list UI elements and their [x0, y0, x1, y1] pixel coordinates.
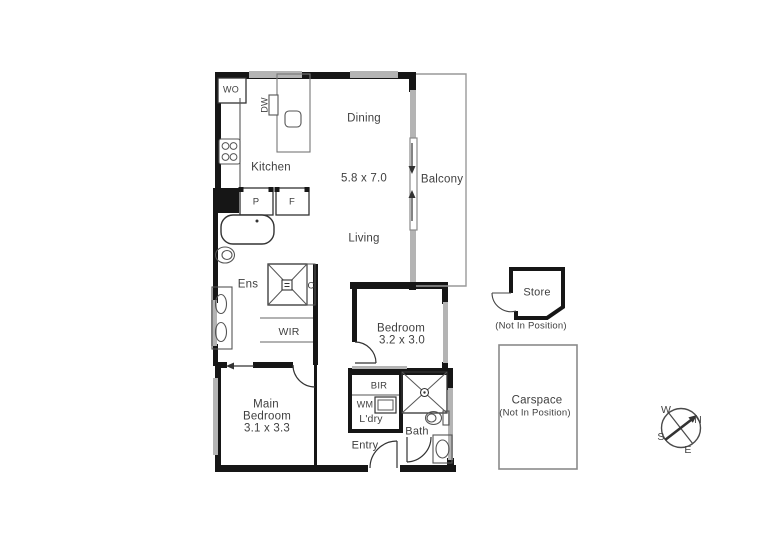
carspace-label: Carspace — [512, 395, 563, 407]
wir-label: WIR — [278, 327, 299, 338]
ensuite-label: Ens — [238, 279, 258, 291]
wall-kitchen-block — [213, 188, 239, 213]
window-balcony-lower — [410, 230, 416, 282]
compass-east-label: E — [684, 445, 691, 456]
windows — [211, 71, 453, 460]
dishwasher — [269, 95, 278, 115]
wm-label: WM — [357, 401, 373, 410]
island-bench — [277, 74, 310, 152]
compass-south-label: S — [657, 432, 664, 443]
window-balcony-upper — [410, 90, 416, 138]
window-mainbed — [213, 378, 218, 455]
basin-bath-bowl — [436, 440, 449, 458]
floor-plan-canvas: WO DW Kitchen Dining 5.8 x 7.0 Living Ba… — [0, 0, 778, 550]
wall-bath-right-top — [447, 368, 453, 390]
bathtub-spout — [256, 220, 259, 223]
vanity-basin — [216, 295, 227, 314]
mainbed-door-arc — [293, 365, 315, 387]
floor-plan-drawing — [0, 0, 778, 550]
window-top-2 — [350, 71, 398, 78]
main-bedroom-label-2: Bedroom — [243, 411, 291, 423]
wall-bedroom-left — [352, 282, 357, 342]
store-door-arc — [492, 293, 516, 312]
compass-north-label: N — [694, 415, 702, 426]
window-bir — [352, 366, 407, 369]
window-bedroom — [443, 302, 448, 363]
bedroom-label: Bedroom — [377, 323, 425, 335]
wall-bottom-left — [215, 465, 368, 472]
store-note-label: (Not In Position) — [495, 321, 567, 331]
main-bedroom-label-1: Main — [253, 399, 279, 411]
dishwasher-label: DW — [261, 97, 270, 112]
sink — [285, 111, 301, 127]
cooktop — [219, 139, 240, 164]
living-label: Living — [348, 233, 379, 245]
shower-ensuite-drain — [282, 280, 292, 290]
entry-label: Entry — [352, 441, 379, 452]
store-label: Store — [523, 288, 550, 299]
wall-right-top-corner — [409, 72, 416, 92]
wall-mainbed-top-mid — [253, 362, 293, 368]
bedroom-dims-label: 3.2 x 3.0 — [379, 335, 425, 347]
living-dims-label: 5.8 x 7.0 — [341, 173, 387, 185]
vanity-basin — [216, 323, 227, 342]
compass-west-label: W — [661, 405, 671, 416]
bedroom-door-arc — [355, 342, 376, 363]
bath-label: Bath — [405, 427, 428, 438]
balcony-label: Balcony — [421, 174, 463, 186]
wall-laundry-left — [348, 368, 352, 433]
kitchen-label: Kitchen — [251, 162, 291, 174]
carspace-note-label: (Not In Position) — [499, 408, 571, 418]
ensuite-fixtures — [212, 215, 315, 349]
wall-mainbed-top-stub — [215, 362, 227, 368]
dining-label: Dining — [347, 113, 381, 125]
mainbed-slide-arrow-head — [226, 363, 234, 370]
main-bedroom-dims-label: 3.1 x 3.3 — [244, 423, 290, 435]
shower-bath-rose-center — [423, 391, 425, 393]
mainbed-slide-arrow — [226, 363, 254, 370]
bathtub — [221, 215, 274, 244]
bath-door-arc — [407, 437, 431, 462]
wall-entry-hall — [314, 365, 317, 465]
wall-laundry-bottom — [348, 429, 403, 433]
laundry-label: L'dry — [359, 414, 382, 425]
pantry-label: P — [253, 197, 260, 207]
fridge-label: F — [289, 197, 295, 207]
toilet-bath-bowl — [427, 414, 436, 422]
cupboard-label: C — [307, 281, 314, 291]
wall-oven-label: WO — [223, 86, 239, 95]
bir-label: BIR — [371, 381, 387, 391]
balcony-sliding-door — [409, 138, 418, 230]
sliding-door-panel — [410, 138, 417, 230]
toilet-ensuite-bowl — [222, 251, 232, 260]
